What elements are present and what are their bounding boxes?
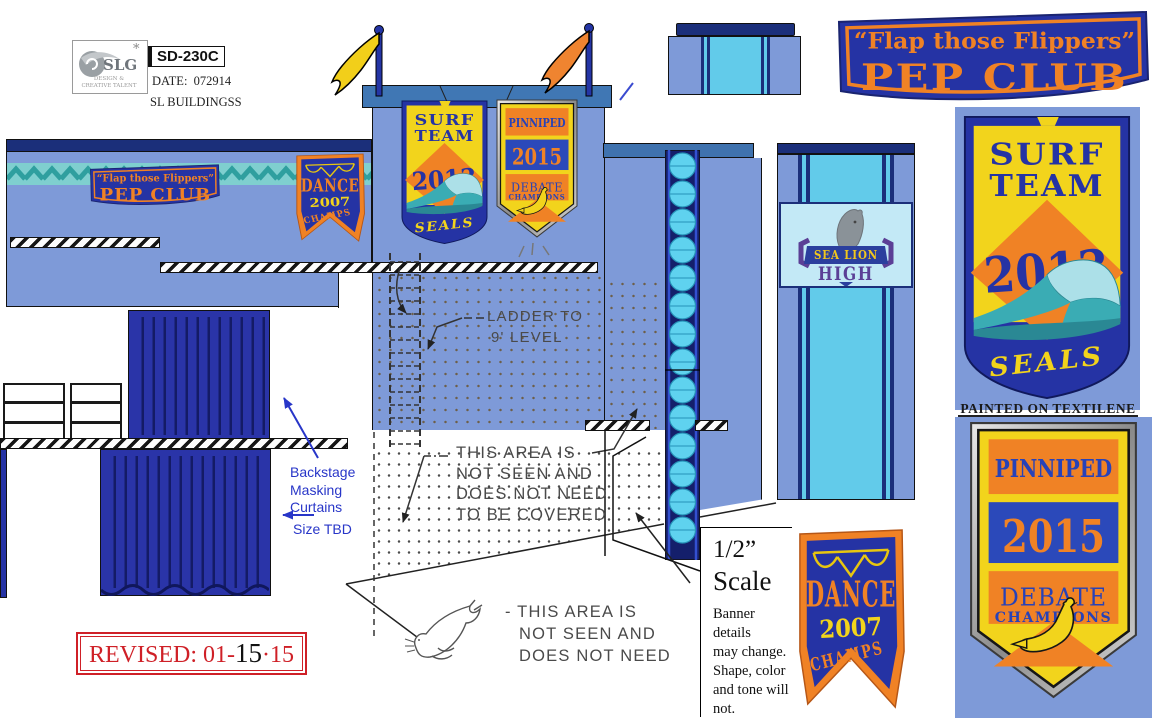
- curtain-scallop-edge: [101, 583, 269, 598]
- pinniped-banner: [495, 98, 579, 240]
- window-frame-unit: [70, 383, 122, 442]
- left-wall-top-band: [6, 139, 372, 152]
- svg-text:CREATIVE TALENT: CREATIVE TALENT: [81, 83, 136, 89]
- pipe-batten: [695, 420, 728, 431]
- curtain-arrow-up: [284, 398, 318, 458]
- drawing-number: SD-230C: [148, 46, 225, 67]
- hidden-area-note-lower: - THIS AREA IS NOT SEEN AND DOES NOT NEE…: [505, 601, 671, 667]
- tower-right-panel: [700, 158, 762, 510]
- window-pane: [5, 385, 63, 401]
- pipe-batten: [10, 237, 160, 248]
- plan-view-body: [668, 36, 801, 95]
- scale-note: Banner details may change. Shape, color …: [713, 605, 792, 719]
- revised-date-suffix: ·15: [262, 642, 294, 668]
- school-line1: SEA LION: [814, 248, 878, 262]
- seal-sketch: [405, 600, 482, 659]
- logo-box: SLG * DESIGN & CREATIVE TALENT: [72, 40, 148, 94]
- pipe-batten: [585, 420, 650, 431]
- curtain-folds: [133, 317, 265, 435]
- pipe-batten: [0, 438, 348, 449]
- slg-logo-icon: SLG * DESIGN & CREATIVE TALENT: [73, 41, 144, 90]
- masking-curtain-upper: [128, 310, 270, 443]
- window-pane: [5, 404, 63, 420]
- dotted-texture-wing: [606, 278, 665, 429]
- pinniped-banner-detail: [967, 419, 1140, 703]
- svg-text:DESIGN &: DESIGN &: [94, 76, 124, 82]
- revised-label: REVISED: 01-: [89, 642, 235, 668]
- backstage-size-note: Size TBD: [293, 521, 352, 539]
- ladder-label: LADDER TO 9' LEVEL: [487, 306, 583, 348]
- window-pane: [72, 404, 120, 420]
- circle-column: [665, 150, 700, 560]
- drawing-date: DATE: 072914: [152, 74, 231, 89]
- dotted-texture-upper: [374, 272, 603, 429]
- proscenium-edge-strip: [0, 449, 7, 598]
- dance-banner: [293, 152, 367, 246]
- sea-lion-high-logo: SEA LION HIGH: [781, 204, 911, 286]
- window-pane: [72, 385, 120, 401]
- pep-club-banner-detail: [833, 8, 1152, 107]
- scale-label: Scale: [713, 566, 792, 597]
- pen-slash-mark: [620, 83, 633, 100]
- wall-step-notch: [338, 268, 372, 308]
- pep-club-banner-left: [88, 163, 221, 208]
- plan-view-cap: [676, 23, 795, 36]
- scale-note-box: 1/2” Scale Banner details may change. Sh…: [700, 527, 792, 717]
- scenic-design-sheet: “Flap those Flippers” PEP CLUB SURF TEAM…: [0, 0, 1152, 720]
- revised-stamp: REVISED: 01-15·15: [76, 632, 307, 675]
- brand-star: *: [133, 42, 140, 57]
- scale-value: 1/2”: [713, 536, 792, 564]
- backstage-note: Backstage Masking Curtains: [290, 464, 355, 517]
- hidden-area-note-upper: THIS AREA IS NOT SEEN AND DOES NOT NEED …: [456, 443, 608, 525]
- curtain-folds: [105, 456, 266, 588]
- window-frame-unit: [3, 383, 65, 442]
- project-name: SL BUILDINGSS: [150, 95, 242, 110]
- surf-team-banner-detail: [961, 113, 1133, 401]
- school-line2: HIGH: [818, 263, 874, 285]
- flag-orange: [542, 31, 589, 93]
- pipe-batten: [160, 262, 598, 273]
- right-tower-top-band: [777, 143, 915, 154]
- surf-team-banner: [400, 99, 489, 245]
- school-logo-panel: SEA LION HIGH: [779, 202, 913, 288]
- masking-curtain-lower: [100, 449, 271, 596]
- brand-text: SLG: [103, 56, 137, 74]
- revised-date-mid: 15: [235, 638, 262, 668]
- dance-banner-detail: [794, 526, 908, 717]
